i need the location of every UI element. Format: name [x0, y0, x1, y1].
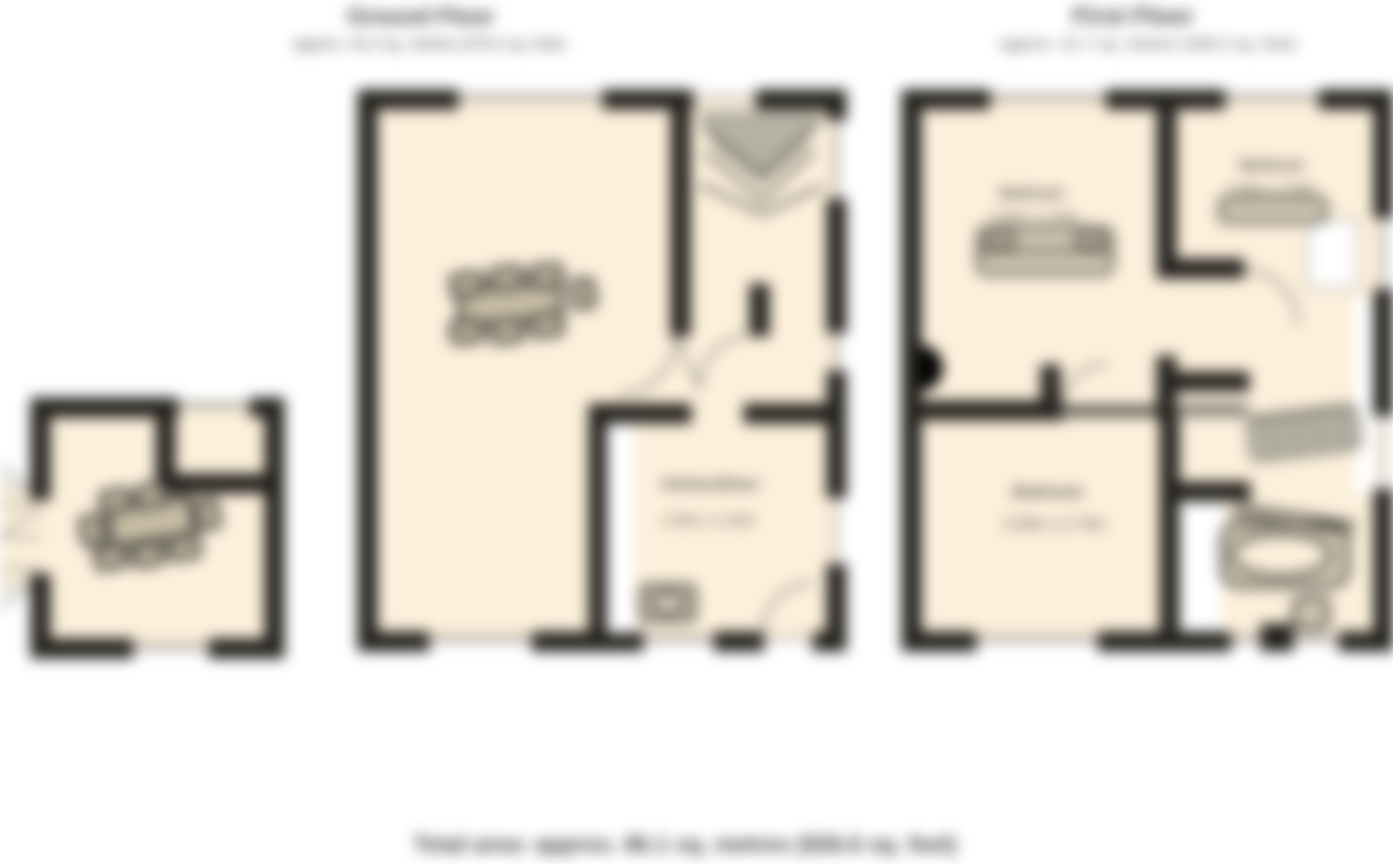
- svg-text:Ground Floor: Ground Floor: [348, 3, 495, 29]
- svg-text:approx. 41.7 sq. metres (448.3: approx. 41.7 sq. metres (448.3 sq. feet): [1000, 36, 1296, 53]
- svg-text:3.35m x 2.74m: 3.35m x 2.74m: [1003, 516, 1106, 533]
- svg-text:Bedroom: Bedroom: [1240, 158, 1304, 174]
- svg-text:Bedroom: Bedroom: [1000, 186, 1064, 202]
- svg-text:3.96m x 3.35m: 3.96m x 3.35m: [990, 210, 1079, 225]
- svg-text:approx. 44.4 sq. metres (478.3: approx. 44.4 sq. metres (478.3 sq. feet): [293, 36, 564, 53]
- svg-text:2.69m x 2.56m: 2.69m x 2.56m: [1227, 182, 1316, 197]
- svg-text:First Floor: First Floor: [1072, 3, 1194, 30]
- svg-text:Kitchen/Diner: Kitchen/Diner: [662, 476, 760, 493]
- svg-text:Total area: approx. 86.1 sq. m: Total area: approx. 86.1 sq. metres (926…: [414, 831, 957, 857]
- svg-text:Bedroom: Bedroom: [1013, 484, 1083, 501]
- svg-text:2.90m x 2.20m: 2.90m x 2.20m: [663, 512, 756, 528]
